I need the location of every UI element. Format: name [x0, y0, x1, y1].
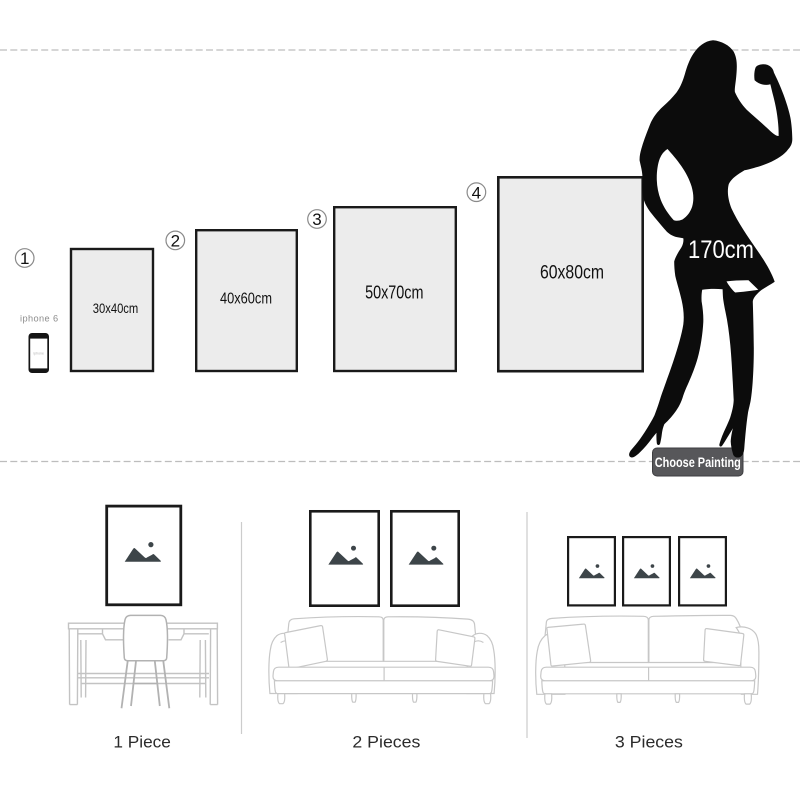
svg-text:Choose Painting: Choose Painting: [655, 455, 741, 470]
svg-text:iphone: iphone: [33, 352, 44, 356]
svg-text:40x60cm: 40x60cm: [220, 291, 272, 308]
svg-text:2: 2: [171, 232, 180, 251]
svg-text:50x70cm: 50x70cm: [365, 282, 423, 303]
svg-text:170cm: 170cm: [688, 236, 754, 264]
svg-text:1: 1: [20, 249, 29, 268]
svg-text:1 Piece: 1 Piece: [113, 733, 170, 752]
svg-text:2 Pieces: 2 Pieces: [352, 733, 420, 752]
svg-text:4: 4: [472, 183, 481, 202]
svg-text:60x80cm: 60x80cm: [540, 262, 604, 283]
svg-text:3: 3: [312, 210, 321, 229]
svg-text:iphone 6: iphone 6: [20, 314, 58, 324]
svg-text:3 Pieces: 3 Pieces: [615, 733, 683, 752]
svg-text:30x40cm: 30x40cm: [93, 300, 139, 316]
